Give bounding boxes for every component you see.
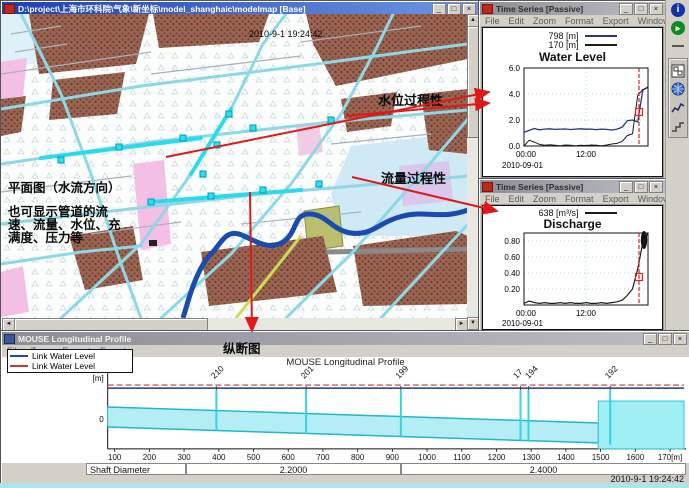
y-tick-label: 0.40 xyxy=(504,269,520,278)
shaft-diameter-table: Shaft Diameter 2.2000 2.4000 xyxy=(86,463,686,475)
x-tick-label: 1300 xyxy=(522,453,540,462)
legend-swatch xyxy=(10,365,28,367)
x-axis-date: 2010-09-01 xyxy=(502,161,543,170)
globe-icon[interactable] xyxy=(669,81,687,97)
close-button[interactable]: × xyxy=(649,181,663,193)
maximize-button[interactable]: □ xyxy=(634,3,648,15)
water-level-chart-area[interactable]: 798 [m] 170 [m] Water Level 6.0 4.0 2.0 … xyxy=(482,27,663,177)
pipe-band xyxy=(108,407,599,443)
table-header: Shaft Diameter xyxy=(86,463,186,475)
pipe-note-line3: 满度、压力等 xyxy=(8,227,83,246)
y-tick-label: 4.0 xyxy=(509,90,521,99)
app-icon xyxy=(4,4,15,14)
x-tick-label: 700 xyxy=(316,453,330,462)
water-level-process-label: 水位过程性 xyxy=(378,90,443,109)
profile-titlebar[interactable]: MOUSE Longitudinal Profile _ □ × xyxy=(2,332,689,345)
profile-window-icon xyxy=(4,334,15,344)
node-label: 210 xyxy=(209,365,226,381)
legend-label: Link Water Level xyxy=(32,361,95,371)
select-icon[interactable] xyxy=(669,63,687,79)
run-icon[interactable]: ▸ xyxy=(669,20,687,36)
x-tick-label: 12:00 xyxy=(576,150,597,159)
map-horizontal-scrollbar[interactable]: ◄ ► xyxy=(2,318,468,330)
profile-icon[interactable] xyxy=(669,99,687,115)
x-tick-label: 400 xyxy=(212,453,226,462)
bottom-strip xyxy=(0,483,689,488)
profile-legend: Link Water Level Link Water Level xyxy=(7,349,133,373)
minimize-button[interactable]: _ xyxy=(643,333,657,345)
city-map xyxy=(1,14,468,318)
map-timestamp: 2010-9-1 19:24:42 xyxy=(249,29,323,39)
profile-node-labels: 21020119917194192 xyxy=(209,365,620,381)
menu-item-edit[interactable]: Edit xyxy=(509,194,525,204)
discharge-chart-area[interactable]: 638 [m³/s] Discharge 0.80 0.60 0.40 0.20… xyxy=(482,205,663,330)
table-value: 2.2000 xyxy=(186,463,401,475)
profile-window-title: MOUSE Longitudinal Profile xyxy=(18,334,642,344)
legend-label: 638 [m³/s] xyxy=(529,208,579,218)
maximize-button[interactable]: □ xyxy=(658,333,672,345)
y-tick-label: 0.20 xyxy=(504,285,520,294)
close-button[interactable]: × xyxy=(649,3,663,15)
y-tick-label: 6.0 xyxy=(509,64,521,73)
x-tick-label: 900 xyxy=(386,453,400,462)
x-tick-label: 1000 xyxy=(418,453,436,462)
legend-label: 170 [m] xyxy=(529,40,579,50)
legend-label: Link Water Level xyxy=(32,351,95,361)
profile-x-ticks: 1002003004005006007008009001000110012001… xyxy=(108,449,682,462)
menu-item-file[interactable]: File xyxy=(485,194,500,204)
y-tick-label: 0.60 xyxy=(504,253,520,262)
series-638 xyxy=(524,233,648,303)
y-tick-label: 0.80 xyxy=(504,237,520,246)
menu-item-format[interactable]: Format xyxy=(565,194,594,204)
map-canvas[interactable]: 2010-9-1 19:24:42 xyxy=(1,14,468,318)
water-level-titlebar[interactable]: Time Series [Passive] _ □ × xyxy=(480,2,665,15)
water-level-window-title: Time Series [Passive] xyxy=(496,4,618,14)
plan-view-label: 平面图（水流方向） xyxy=(8,177,121,196)
profile-window: MOUSE Longitudinal Profile _ □ × FileZoo… xyxy=(0,330,689,485)
discharge-window-title: Time Series [Passive] xyxy=(496,182,618,192)
minimize-button[interactable]: _ xyxy=(432,3,446,15)
x-tick-label: 1200 xyxy=(488,453,506,462)
x-tick-label: 800 xyxy=(351,453,365,462)
x-tick-label: 170[m] xyxy=(658,453,682,462)
close-button[interactable]: × xyxy=(673,333,687,345)
maximize-button[interactable]: □ xyxy=(447,3,461,15)
x-tick-label: 00:00 xyxy=(516,150,537,159)
y-axis-unit: [m] xyxy=(93,374,104,383)
x-tick-label: 100 xyxy=(108,453,122,462)
x-tick-label: 1400 xyxy=(557,453,575,462)
map-vertical-scrollbar[interactable]: ▲ ▼ xyxy=(467,14,478,330)
steps-icon[interactable] xyxy=(669,117,687,133)
node-label: 192 xyxy=(603,365,620,381)
menu-item-edit[interactable]: Edit xyxy=(509,16,525,26)
y-tick-label: 0 xyxy=(99,415,104,424)
menu-item-export[interactable]: Export xyxy=(603,16,629,26)
y-tick-label: 2.0 xyxy=(509,116,521,125)
node-label: 194 xyxy=(523,365,540,381)
minimize-button[interactable]: _ xyxy=(619,3,633,15)
menu-item-export[interactable]: Export xyxy=(603,194,629,204)
desktop: D:\project\上海市环科院\气象\新坐标\model_shanghaic… xyxy=(0,0,689,488)
discharge-titlebar[interactable]: Time Series [Passive] _ □ × xyxy=(480,180,665,193)
time-series-icon xyxy=(482,182,493,192)
discharge-plot: 0.80 0.60 0.40 0.20 00:00 12:00 2010-09-… xyxy=(488,229,656,329)
discharge-process-label: 流量过程性 xyxy=(381,168,446,187)
legend-swatch xyxy=(10,355,28,357)
profile-plot: [m] 0 xyxy=(2,365,689,463)
x-tick-label: 500 xyxy=(247,453,261,462)
minimize-button[interactable]: _ xyxy=(619,181,633,193)
tool-palette xyxy=(668,58,688,138)
map-window-title: D:\project\上海市环科院\气象\新坐标\model_shanghaic… xyxy=(18,3,431,15)
time-series-icon xyxy=(482,4,493,14)
map-window: D:\project\上海市环科院\气象\新坐标\model_shanghaic… xyxy=(0,0,480,332)
section-label: 纵断图 xyxy=(223,338,261,357)
node-label: 201 xyxy=(298,365,315,381)
menu-item-format[interactable]: Format xyxy=(565,16,594,26)
node-label: 199 xyxy=(393,365,410,381)
series-peak-blob xyxy=(641,231,647,249)
x-tick-label: 00:00 xyxy=(516,309,537,318)
water-level-window: Time Series [Passive] _ □ × FileEditZoom… xyxy=(478,0,667,180)
discharge-window: Time Series [Passive] _ □ × FileEditZoom… xyxy=(478,178,667,332)
x-axis-date: 2010-09-01 xyxy=(502,319,543,328)
x-tick-label: 1500 xyxy=(592,453,610,462)
x-tick-label: 600 xyxy=(282,453,296,462)
close-button[interactable]: × xyxy=(462,3,476,15)
x-tick-label: 300 xyxy=(177,453,191,462)
info-icon[interactable]: i xyxy=(669,2,687,18)
x-tick-label: 1100 xyxy=(453,453,471,462)
x-tick-label: 12:00 xyxy=(576,309,597,318)
menu-item-zoom[interactable]: Zoom xyxy=(533,16,556,26)
menu-item-file[interactable]: File xyxy=(485,16,500,26)
menu-item-zoom[interactable]: Zoom xyxy=(533,194,556,204)
x-tick-label: 1600 xyxy=(626,453,644,462)
legend-swatch xyxy=(585,212,617,214)
series-798 xyxy=(524,87,648,132)
x-tick-label: 200 xyxy=(143,453,157,462)
separator xyxy=(669,38,687,54)
maximize-button[interactable]: □ xyxy=(634,181,648,193)
legend-swatch xyxy=(585,35,617,37)
water-level-plot: 6.0 4.0 2.0 0.0 00:00 12:00 2010-09-01 xyxy=(488,62,656,176)
side-toolbar: i ▸ xyxy=(665,0,689,330)
legend-swatch xyxy=(585,44,617,46)
